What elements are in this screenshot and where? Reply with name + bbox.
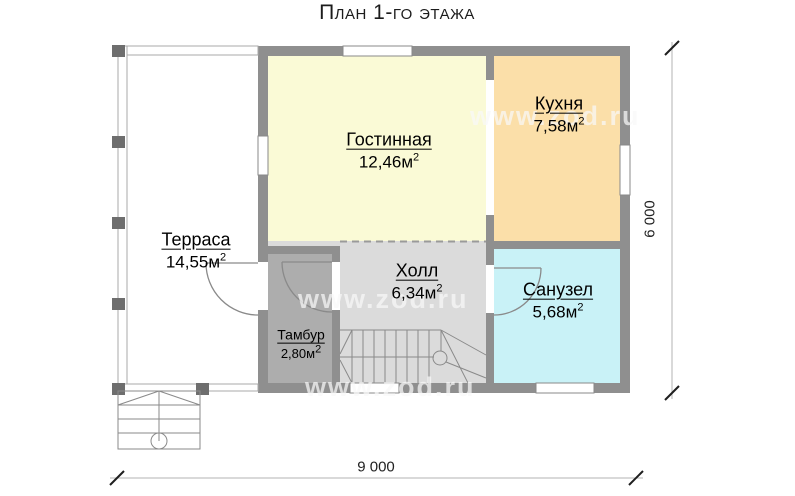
plan-title: План 1-го этажа: [319, 1, 475, 25]
wall-segment: [399, 383, 536, 393]
wall-segment: [268, 246, 340, 254]
room-area: 2,80м2: [277, 343, 325, 361]
wall-segment: [486, 215, 494, 241]
terrace-column: [196, 383, 209, 395]
wall-segment: [258, 46, 268, 136]
wall-segment: [486, 249, 494, 265]
door-opening: [332, 262, 340, 310]
room-name: Тамбур: [277, 327, 325, 344]
room-area: 12,46м2: [346, 151, 432, 172]
room-area: 6,34м2: [392, 282, 443, 303]
terrace-column: [112, 298, 125, 310]
room-name: Санузел: [523, 280, 593, 302]
window: [620, 145, 630, 195]
wall-segment: [486, 241, 620, 249]
wall-segment: [620, 195, 630, 393]
window: [258, 136, 268, 175]
floor-plan-drawing: [0, 0, 795, 496]
floor-plan-page: www.zod.ru www.zod.ru www.zod.ru План 1-…: [0, 0, 795, 496]
room-name: Кухня: [534, 94, 585, 116]
room-label-hall: Холл 6,34м2: [392, 261, 443, 304]
wall-segment: [486, 56, 494, 80]
dimension-width-label: 9 000: [357, 459, 395, 476]
terrace-column: [112, 136, 125, 148]
room-label-terrace: Терраса 14,55м2: [161, 230, 230, 273]
terrace-edge: [118, 46, 258, 55]
room-area: 5,68м2: [523, 301, 593, 322]
window: [536, 383, 594, 393]
room-label-bathroom: Санузел 5,68м2: [523, 280, 593, 323]
window: [343, 46, 412, 56]
window: [350, 383, 399, 393]
wall-segment: [258, 310, 268, 393]
room-name: Терраса: [161, 230, 230, 252]
terrace-structure: [112, 45, 258, 395]
terrace-column: [112, 45, 125, 57]
room-label-tambour: Тамбур 2,80м2: [277, 327, 325, 362]
wall-segment: [258, 175, 268, 262]
wall-segment: [486, 313, 494, 383]
room-area: 14,55м2: [161, 251, 230, 272]
wall-segment: [332, 310, 340, 383]
kitchen-fill: [494, 56, 620, 241]
door-opening: [258, 262, 268, 310]
room-label-living: Гостинная 12,46м2: [346, 130, 432, 173]
wall-segment: [332, 254, 340, 262]
entry-steps: [118, 391, 200, 449]
room-name: Холл: [392, 261, 443, 283]
terrace-edge: [118, 384, 258, 391]
room-label-kitchen: Кухня 7,58м2: [534, 94, 585, 137]
room-name: Гостинная: [346, 130, 432, 152]
room-area: 7,58м2: [534, 115, 585, 136]
wall-segment: [258, 46, 343, 56]
wall-segment: [412, 46, 630, 56]
door-opening: [486, 265, 494, 313]
wall-segment: [258, 383, 350, 393]
wall-segment: [620, 46, 630, 145]
terrace-column: [112, 217, 125, 229]
dimension-height-label: 6 000: [642, 200, 659, 238]
tambour-fill: [268, 254, 332, 383]
